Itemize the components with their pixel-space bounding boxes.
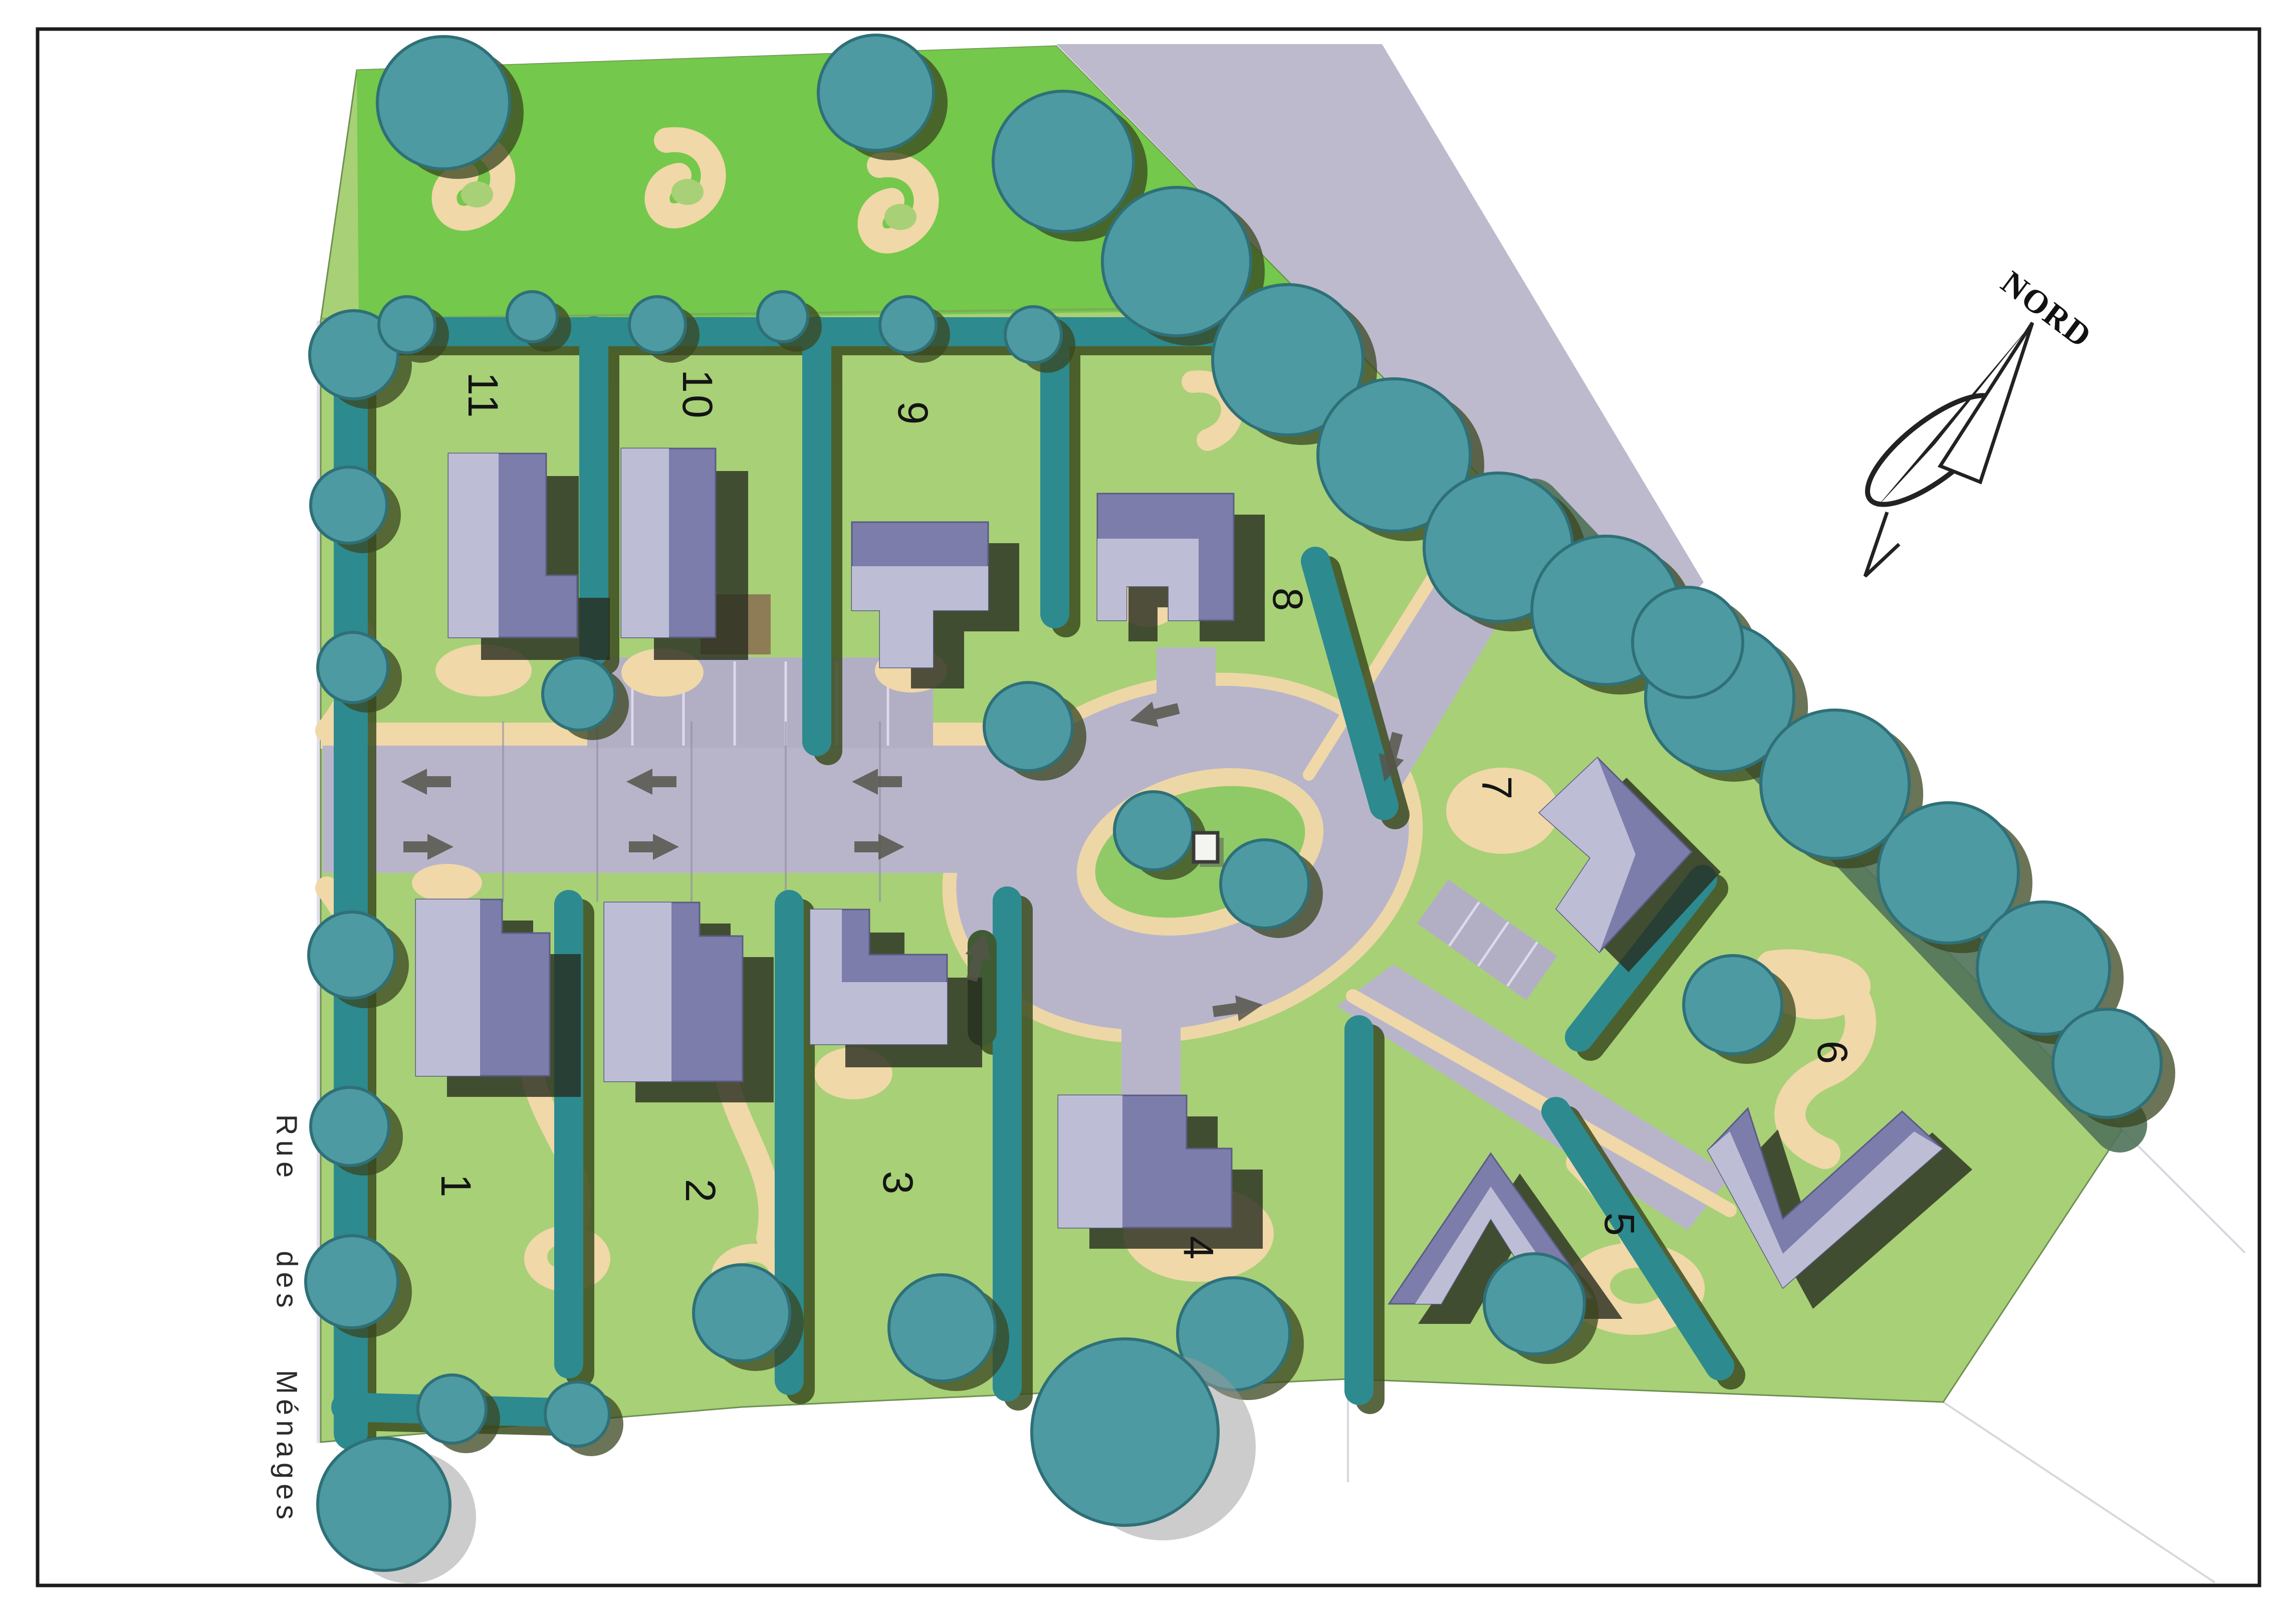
street-label-rue: Rue: [271, 1114, 303, 1183]
lot-number-2: 2: [677, 1179, 724, 1205]
lot-number-1: 1: [432, 1174, 480, 1200]
lot-number-3: 3: [874, 1171, 922, 1197]
lot-number-5: 5: [1596, 1213, 1643, 1238]
lot-number-4: 4: [1175, 1236, 1222, 1262]
lot-number-7: 7: [1473, 776, 1520, 802]
site-plan-page: 1 2 3 4 5 6 7 8 9 10 11 Rue des Ménages …: [0, 0, 2296, 1610]
lot-number-6: 6: [1809, 1041, 1856, 1066]
lot-number-11: 11: [460, 372, 507, 419]
lot-number-9: 9: [889, 401, 937, 427]
driveway-lot4: [1121, 986, 1181, 1112]
island-monument: [1194, 833, 1224, 867]
lot-number-8: 8: [1264, 588, 1311, 613]
lot-number-10: 10: [674, 369, 721, 420]
driveway-lot8: [1157, 647, 1216, 736]
house-8: [1097, 494, 1265, 641]
street-label-des: des: [271, 1251, 303, 1313]
street-label-menages: Ménages: [271, 1370, 303, 1525]
site-plan-drawing: 1 2 3 4 5 6 7 8 9 10 11 Rue des Ménages …: [0, 0, 2296, 1610]
